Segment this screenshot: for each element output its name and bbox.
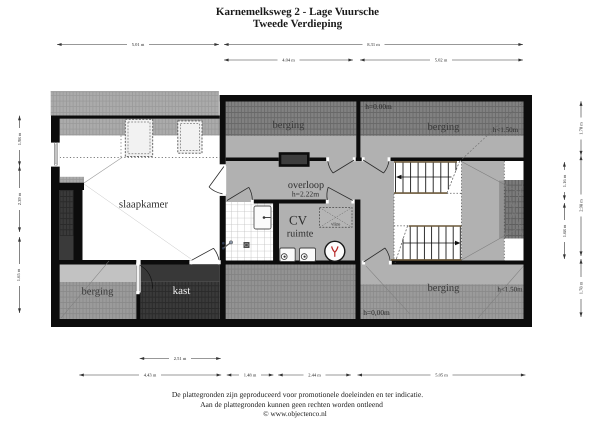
svg-text:5.01 m: 5.01 m bbox=[132, 42, 145, 47]
svg-text:slaapkamer: slaapkamer bbox=[119, 199, 169, 211]
svg-text:berging: berging bbox=[82, 287, 115, 298]
svg-text:2.98 m: 2.98 m bbox=[579, 199, 584, 212]
svg-text:8.31 m: 8.31 m bbox=[367, 42, 380, 47]
svg-text:2.44 m: 2.44 m bbox=[308, 373, 321, 378]
svg-text:4.04 m: 4.04 m bbox=[282, 58, 295, 63]
svg-text:vlizo: vlizo bbox=[331, 222, 341, 227]
svg-text:Karnemelksweg 2 - Lage Vuursch: Karnemelksweg 2 - Lage Vuursche bbox=[216, 6, 379, 18]
svg-text:1.65 m: 1.65 m bbox=[16, 268, 21, 281]
svg-text:2.51 m: 2.51 m bbox=[174, 356, 187, 361]
svg-text:1.16 m: 1.16 m bbox=[562, 174, 567, 187]
svg-text:4.43 m: 4.43 m bbox=[144, 373, 157, 378]
svg-text:h=0,00m: h=0,00m bbox=[363, 308, 390, 317]
svg-text:5.05 m: 5.05 m bbox=[435, 373, 448, 378]
svg-text:ruimte: ruimte bbox=[287, 229, 314, 240]
svg-text:h=2.22m: h=2.22m bbox=[292, 190, 319, 199]
svg-text:berging: berging bbox=[428, 283, 461, 294]
svg-text:1.68 m: 1.68 m bbox=[562, 224, 567, 237]
svg-text:h<1.50m: h<1.50m bbox=[497, 286, 523, 294]
svg-text:5.02 m: 5.02 m bbox=[435, 58, 448, 63]
svg-text:De plattegronden zijn geproduc: De plattegronden zijn geproduceerd voor … bbox=[172, 390, 423, 399]
svg-text:2.39 m: 2.39 m bbox=[17, 192, 22, 205]
svg-text:1.78 m: 1.78 m bbox=[579, 281, 584, 294]
svg-text:h<1.50m: h<1.50m bbox=[493, 126, 519, 134]
svg-text:© www.objectenco.nl: © www.objectenco.nl bbox=[263, 409, 327, 418]
svg-text:berging: berging bbox=[428, 122, 461, 133]
svg-text:1.48 m: 1.48 m bbox=[244, 373, 257, 378]
svg-text:CV: CV bbox=[289, 213, 308, 228]
svg-text:kast: kast bbox=[173, 285, 191, 297]
svg-text:1.98 m: 1.98 m bbox=[17, 132, 22, 145]
svg-text:Tweede Verdieping: Tweede Verdieping bbox=[253, 18, 343, 30]
svg-text:h=0.00m: h=0.00m bbox=[365, 102, 392, 111]
svg-text:berging: berging bbox=[273, 120, 306, 131]
svg-text:1.70 m: 1.70 m bbox=[579, 122, 584, 135]
svg-text:Aan de plattegronden kunnen ge: Aan de plattegronden kunnen geen rechten… bbox=[200, 400, 383, 409]
